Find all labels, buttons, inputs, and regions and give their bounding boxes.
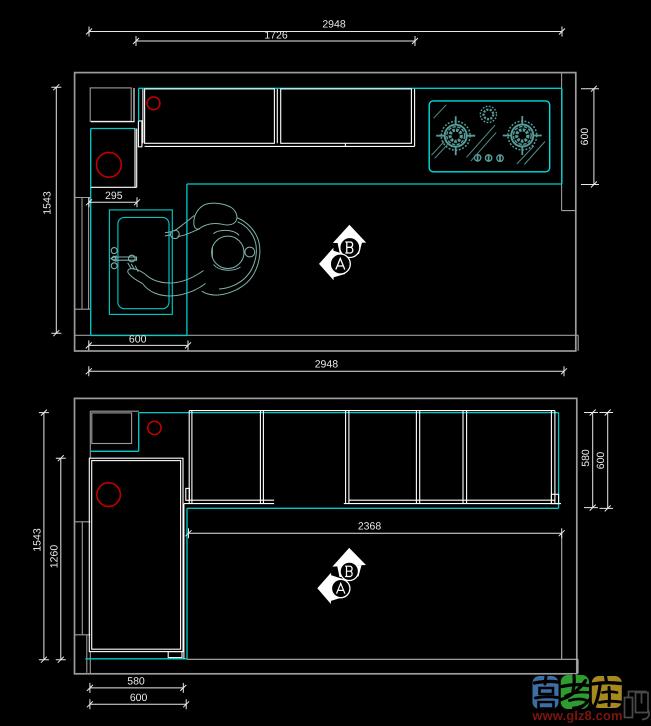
svg-text:1543: 1543 (31, 528, 43, 552)
svg-text:1543: 1543 (42, 191, 54, 215)
svg-text:1726: 1726 (264, 30, 288, 42)
svg-text:www.glz8.com: www.glz8.com (531, 708, 622, 723)
svg-text:600: 600 (129, 334, 147, 346)
svg-text:600: 600 (130, 692, 148, 704)
svg-text:2948: 2948 (322, 19, 346, 31)
svg-text:2368: 2368 (358, 520, 382, 532)
svg-text:1260: 1260 (48, 545, 60, 569)
svg-text:600: 600 (595, 452, 607, 470)
svg-text:600: 600 (579, 128, 591, 146)
svg-text:2948: 2948 (315, 359, 339, 371)
svg-text:580: 580 (127, 675, 145, 687)
svg-text:295: 295 (105, 190, 123, 202)
svg-text:580: 580 (580, 449, 592, 467)
